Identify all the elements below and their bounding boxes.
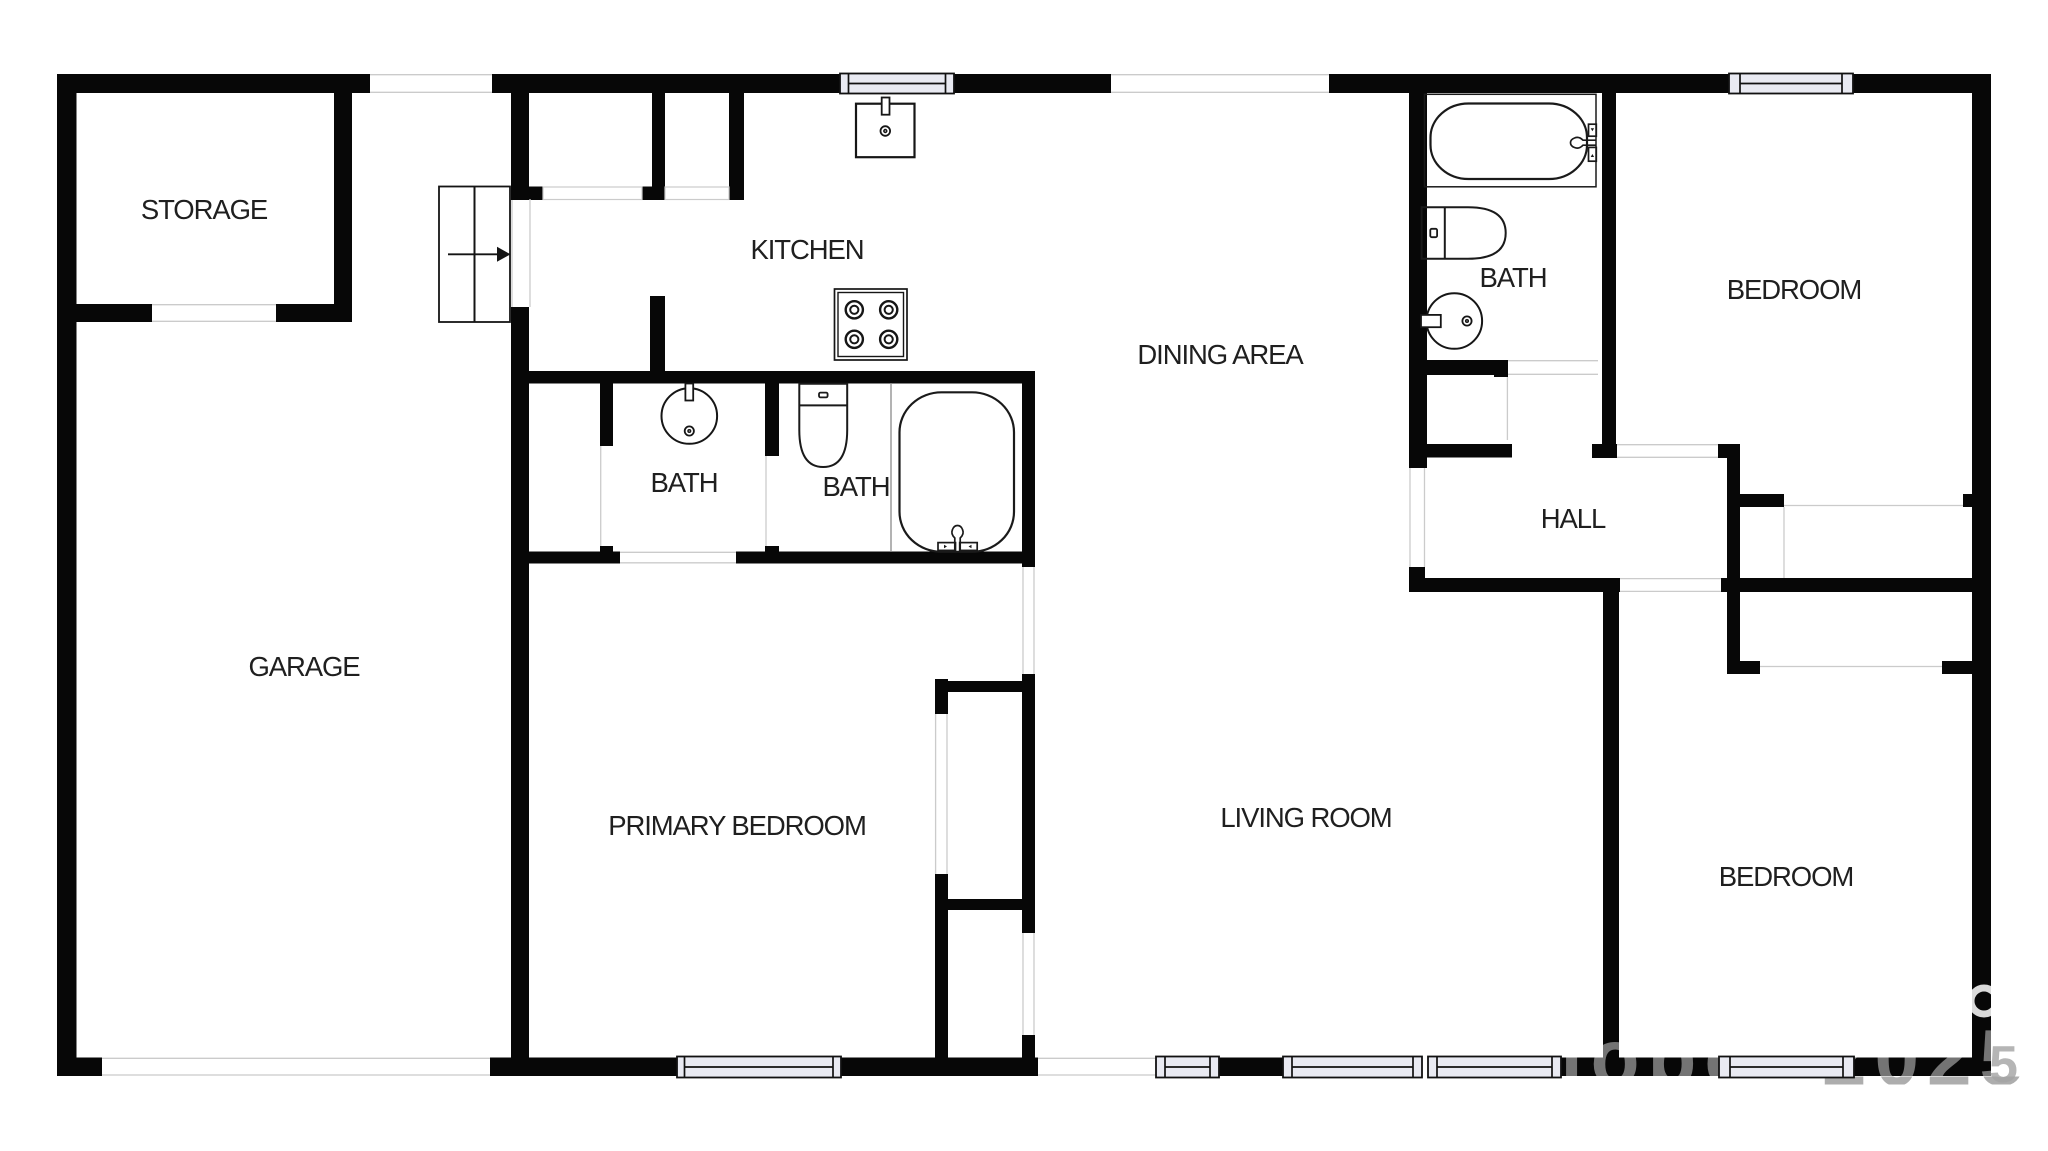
svg-text:DINING AREA: DINING AREA bbox=[1137, 339, 1304, 370]
svg-text:PRIMARY BEDROOM: PRIMARY BEDROOM bbox=[608, 810, 866, 841]
svg-text:BATH: BATH bbox=[651, 467, 718, 498]
svg-text:STORAGE: STORAGE bbox=[141, 194, 268, 225]
svg-text:5: 5 bbox=[1989, 1036, 2018, 1094]
svg-text:LIVING ROOM: LIVING ROOM bbox=[1220, 802, 1391, 833]
svg-text:BEDROOM: BEDROOM bbox=[1727, 274, 1861, 305]
svg-text:BATH: BATH bbox=[823, 471, 890, 502]
svg-text:BEDROOM: BEDROOM bbox=[1719, 861, 1853, 892]
svg-text:KITCHEN: KITCHEN bbox=[750, 234, 863, 265]
svg-text:BATH: BATH bbox=[1480, 262, 1547, 293]
svg-text:HALL: HALL bbox=[1541, 503, 1606, 534]
svg-text:GARAGE: GARAGE bbox=[248, 651, 360, 682]
